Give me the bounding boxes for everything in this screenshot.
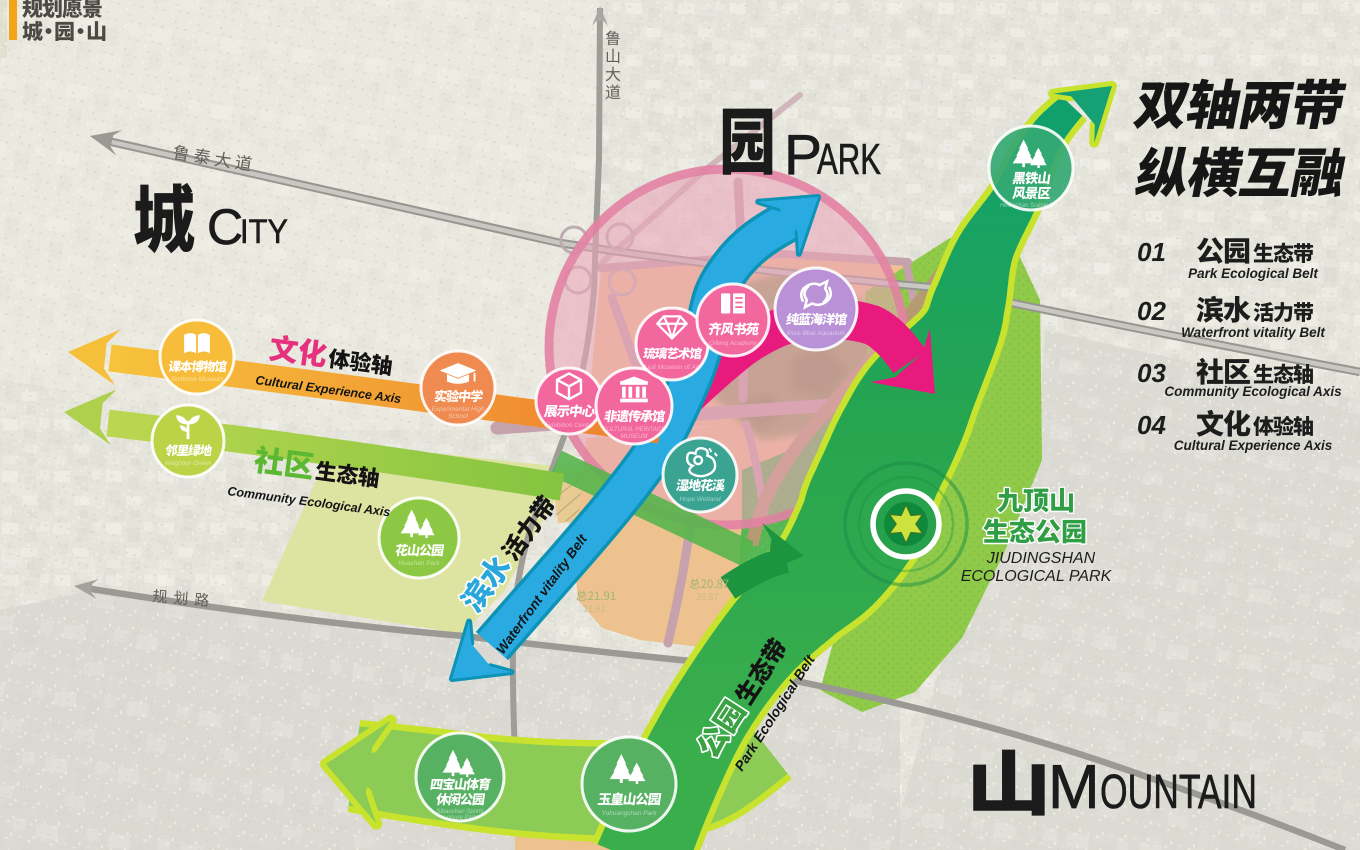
svg-text:Cultural Experience Axis: Cultural Experience Axis xyxy=(1174,438,1333,453)
svg-text:Experimental High: Experimental High xyxy=(431,406,484,413)
svg-text:Yuhuangshan Park: Yuhuangshan Park xyxy=(601,810,657,817)
svg-text:Exhibition Center: Exhibition Center xyxy=(544,422,594,429)
svg-text:Qifeng Academy: Qifeng Academy xyxy=(709,340,758,347)
svg-text:Textbook Museum: Textbook Museum xyxy=(171,376,224,383)
svg-text:OUNTAIN: OUNTAIN xyxy=(1100,766,1257,819)
svg-text:01: 01 xyxy=(1137,237,1166,267)
svg-text:ARK: ARK xyxy=(817,135,881,184)
svg-text:Heitieshan Scenic Spot: Heitieshan Scenic Spot xyxy=(1000,203,1062,209)
svg-text:MUSEUM: MUSEUM xyxy=(621,434,648,440)
svg-text:ITY: ITY xyxy=(240,213,288,251)
svg-text:04: 04 xyxy=(1137,410,1166,440)
svg-text:Waterfront vitality Belt: Waterfront vitality Belt xyxy=(1181,325,1325,340)
svg-text:Huashan Park: Huashan Park xyxy=(398,560,440,567)
svg-text:Community Ecological Axis: Community Ecological Axis xyxy=(1164,384,1342,399)
svg-text:ECOLOGICAL PARK: ECOLOGICAL PARK xyxy=(961,568,1113,585)
svg-text:JIUDINGSHAN: JIUDINGSHAN xyxy=(986,550,1096,567)
svg-text:Neighbor Green: Neighbor Green xyxy=(165,460,212,467)
svg-text:02: 02 xyxy=(1137,296,1166,326)
svg-text:C: C xyxy=(207,199,243,255)
svg-text:School: School xyxy=(448,413,468,420)
svg-text:Park Ecological Belt: Park Ecological Belt xyxy=(1188,266,1318,281)
svg-text:CULTURAL HERITAGE: CULTURAL HERITAGE xyxy=(602,427,666,433)
svg-text:Hope Wetland: Hope Wetland xyxy=(679,496,720,503)
svg-text:03: 03 xyxy=(1137,358,1166,388)
svg-text:Leisure Park: Leisure Park xyxy=(443,815,478,821)
svg-text:Pure Blue Aquarium: Pure Blue Aquarium xyxy=(787,330,846,337)
svg-text:M: M xyxy=(1048,753,1100,822)
svg-text:Liuli Museum of Art: Liuli Museum of Art xyxy=(644,364,701,371)
